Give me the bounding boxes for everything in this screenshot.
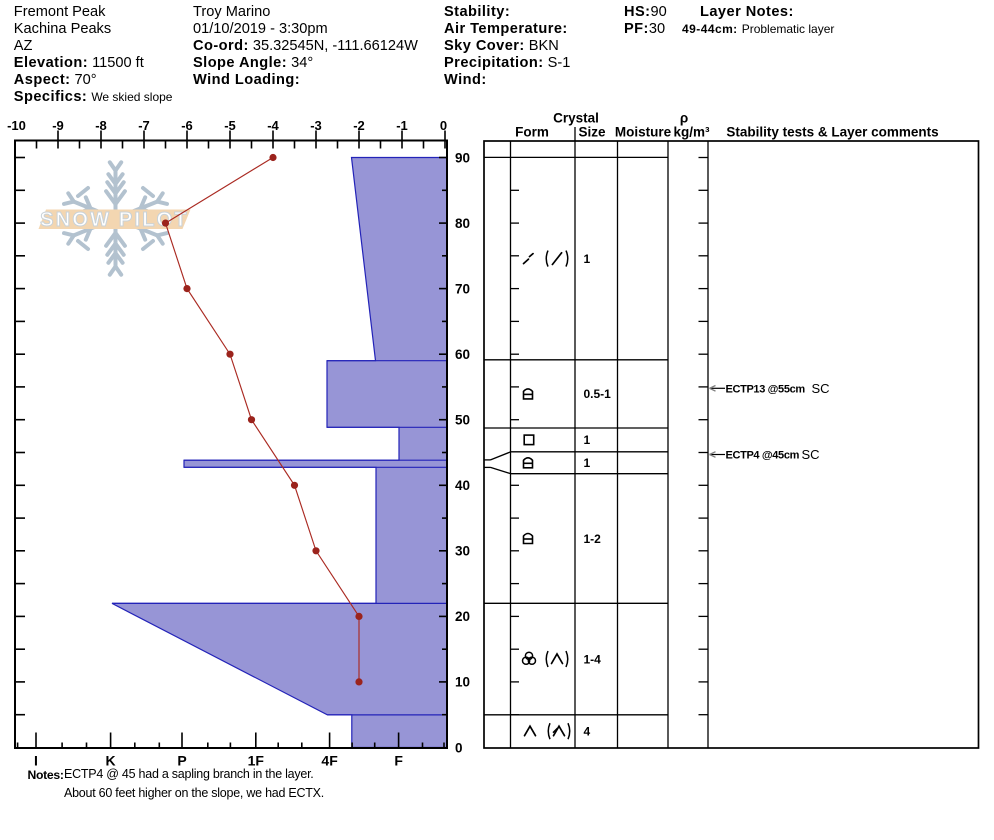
svg-text:ρ: ρ — [680, 111, 688, 126]
svg-text:Moisture: Moisture — [615, 125, 672, 140]
svg-text:0: 0 — [455, 740, 463, 755]
svg-text:-10: -10 — [7, 118, 26, 133]
svg-text:30: 30 — [455, 544, 470, 559]
svg-text:-1: -1 — [396, 118, 408, 133]
svg-text:-8: -8 — [95, 118, 107, 133]
svg-text:70: 70 — [455, 281, 470, 296]
svg-text:80: 80 — [455, 216, 470, 231]
svg-text:SC: SC — [812, 381, 830, 396]
svg-text:Form: Form — [515, 125, 549, 140]
svg-text:1-4: 1-4 — [584, 652, 602, 666]
svg-text:4: 4 — [584, 725, 591, 739]
svg-text:0.5-1: 0.5-1 — [584, 387, 612, 401]
svg-text:0: 0 — [440, 118, 447, 133]
svg-text:ECTP13 @55cm: ECTP13 @55cm — [726, 384, 806, 396]
svg-text:kg/m³: kg/m³ — [673, 125, 710, 140]
svg-text:K: K — [106, 753, 116, 769]
svg-text:Size: Size — [578, 125, 606, 140]
svg-text:90: 90 — [455, 150, 470, 165]
svg-text:-9: -9 — [52, 118, 64, 133]
svg-text:-2: -2 — [353, 118, 365, 133]
svg-text:40: 40 — [455, 478, 470, 493]
svg-text:-3: -3 — [310, 118, 322, 133]
svg-text:-5: -5 — [224, 118, 236, 133]
svg-text:-4: -4 — [267, 118, 279, 133]
svg-text:1: 1 — [584, 433, 591, 447]
svg-text:-6: -6 — [181, 118, 193, 133]
svg-text:10: 10 — [455, 675, 470, 690]
svg-text:1-2: 1-2 — [584, 532, 602, 546]
svg-text:20: 20 — [455, 609, 470, 624]
svg-text:ECTP4 @45cm: ECTP4 @45cm — [726, 450, 800, 462]
svg-text:SC: SC — [802, 447, 820, 462]
svg-text:4F: 4F — [321, 753, 338, 769]
svg-text:Crystal: Crystal — [553, 111, 599, 126]
svg-text:1: 1 — [584, 456, 591, 470]
svg-text:P: P — [177, 753, 186, 769]
svg-text:50: 50 — [455, 413, 470, 428]
svg-text:Stability tests & Layer commen: Stability tests & Layer comments — [726, 125, 938, 140]
svg-text:60: 60 — [455, 347, 470, 362]
svg-text:1: 1 — [584, 252, 591, 266]
svg-text:1F: 1F — [248, 753, 265, 769]
svg-text:F: F — [394, 753, 403, 769]
svg-text:-7: -7 — [138, 118, 150, 133]
